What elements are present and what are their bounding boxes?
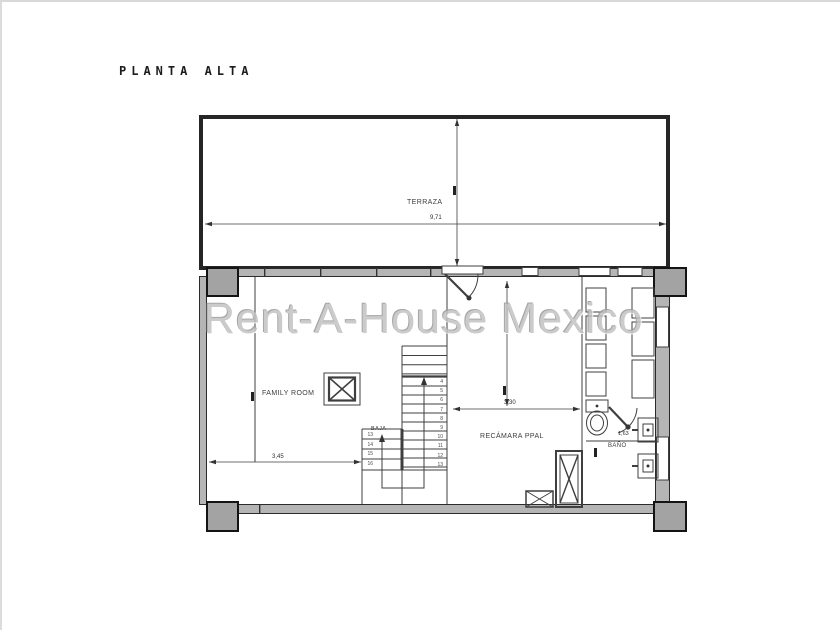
toilet-icon <box>586 400 608 435</box>
stairs-label-baja: BAJA <box>371 426 386 432</box>
page-title: PLANTA ALTA <box>119 64 253 78</box>
dim-label-recamara-width: 3,30 <box>504 400 516 406</box>
dim-label-bano-width: 1,63 <box>618 431 629 437</box>
stair-step-numbers-left: 13 14 15 16 <box>363 431 373 470</box>
service-shaft-x-icon <box>526 451 582 507</box>
watermark: Rent-A-House Mexico <box>204 295 644 344</box>
room-label-bano: BAÑO <box>608 443 627 449</box>
sink-icon <box>632 418 658 478</box>
shaft-x-icon <box>324 373 360 405</box>
stair-step-numbers-right: 4 5 6 7 8 9 10 11 12 13 <box>429 378 443 470</box>
dim-label-family-width: 3,45 <box>272 454 284 460</box>
floor-plan: PLANTA ALTA <box>0 0 840 630</box>
room-label-terraza: TERRAZA <box>407 199 442 206</box>
room-label-family-room: FAMILY ROOM <box>262 390 314 397</box>
dim-label-terraza-width: 9,71 <box>430 215 442 221</box>
room-label-recamara-ppal: RECÁMARA PPAL <box>480 433 544 440</box>
